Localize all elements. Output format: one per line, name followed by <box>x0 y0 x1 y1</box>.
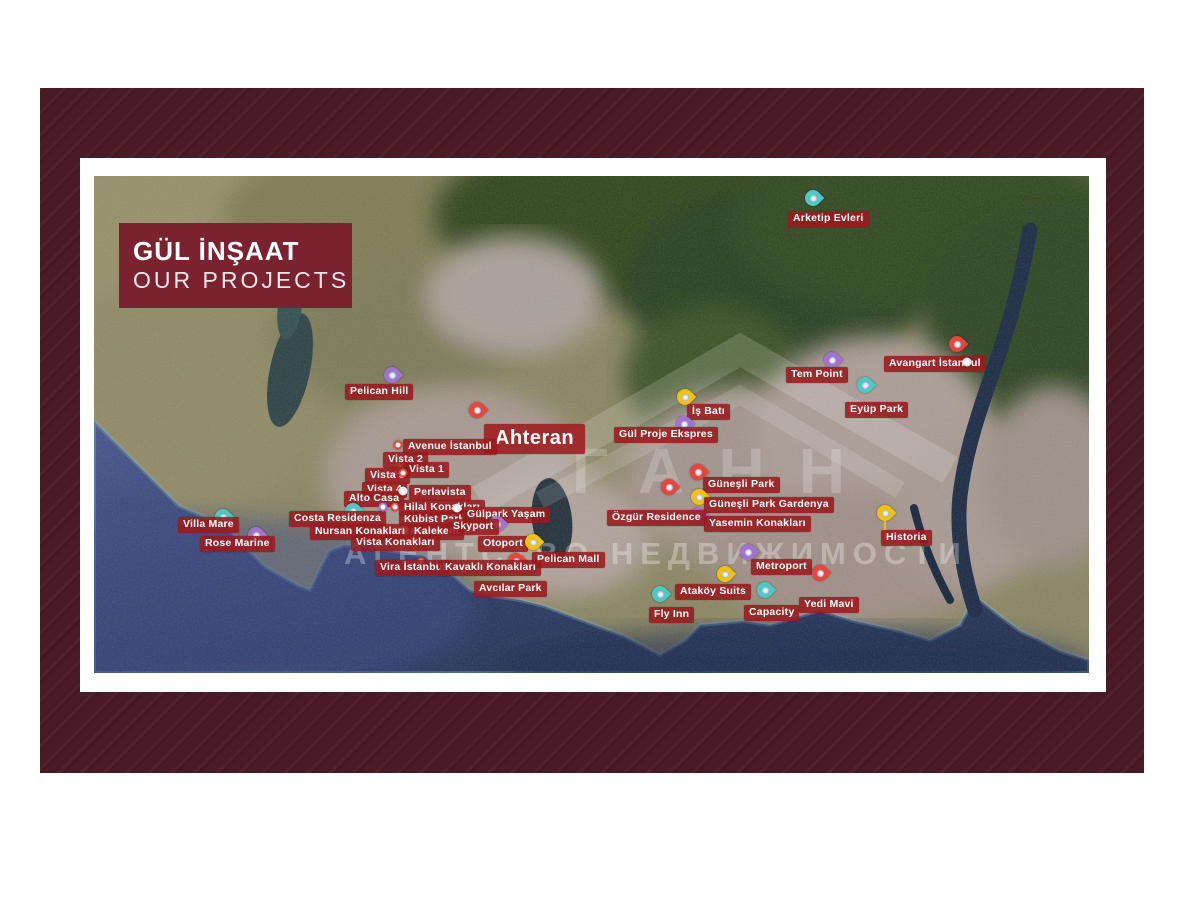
tem-point-pin <box>824 352 840 368</box>
project-label-ey-p-park: Eyüp Park <box>845 402 908 418</box>
ahteran-pin <box>469 402 485 418</box>
project-label-i-bat: İş Batı <box>687 404 730 420</box>
project-label-g-ne-li-park: Güneşli Park <box>703 477 780 493</box>
avenue-i-stanbul-pin <box>394 441 403 450</box>
project-label-g-l-proje-ekspres: Gül Proje Ekspres <box>614 427 718 443</box>
project-label-atak-y-suits: Ataköy Suits <box>675 584 751 600</box>
pelican-mall-pin <box>525 534 541 550</box>
project-label-avc-lar-park: Avcılar Park <box>474 581 547 597</box>
project-label-metroport: Metroport <box>751 559 812 575</box>
capacity-pin <box>757 582 773 598</box>
project-label-villa-mare: Villa Mare <box>178 517 239 533</box>
extra-pin-0 <box>399 469 408 478</box>
arketip-evleri-pin <box>805 190 821 206</box>
project-label-tem-point: Tem Point <box>786 367 848 383</box>
project-label-g-ne-li-park-gardenya: Güneşli Park Gardenya <box>704 497 834 513</box>
avangart-i-stanbul-pin <box>949 336 965 352</box>
atak-y-suits-pin <box>717 566 733 582</box>
project-label-pelican-mall: Pelican Mall <box>532 552 605 568</box>
project-label-perlavista: Perlavista <box>409 485 471 501</box>
slide-page: ГАНН АГЕНТСТВО НЕДВИЖИМОСТИ Pelican Hill… <box>0 0 1200 900</box>
yedi-mavi-pin <box>812 565 828 581</box>
extra-pin-2 <box>379 503 388 512</box>
project-label-yedi-mavi: Yedi Mavi <box>799 597 859 613</box>
g-lpark-ya-am-pin <box>453 504 462 513</box>
zg-r-residence-pin <box>661 479 677 495</box>
project-label-kavakl-konaklar: Kavaklı Konakları <box>440 560 541 576</box>
pelican-hill-pin <box>384 367 400 383</box>
slide-subtitle: OUR PROJECTS <box>133 266 352 295</box>
fly-inn-pin <box>652 586 668 602</box>
project-label-vista-1: Vista 1 <box>404 462 449 478</box>
i-bat-pin <box>677 389 693 405</box>
project-label-zg-r-residence: Özgür Residence <box>607 510 706 526</box>
project-label-otoport: Otoport <box>478 536 528 552</box>
perlavista-pin <box>399 487 408 496</box>
extra-pin-1 <box>963 358 972 367</box>
project-label-fly-inn: Fly Inn <box>649 607 694 623</box>
project-label-pelican-hill: Pelican Hill <box>345 384 413 400</box>
project-label-yasemin-konaklar: Yasemin Konakları <box>704 516 811 532</box>
project-label-ahteran: Ahteran <box>484 424 585 454</box>
project-label-capacity: Capacity <box>744 605 799 621</box>
project-label-historia: Historia <box>881 530 932 546</box>
company-name: GÜL İNŞAAT <box>133 237 352 266</box>
ey-p-park-pin <box>857 377 873 393</box>
title-block: GÜL İNŞAAT OUR PROJECTS <box>119 223 352 308</box>
project-label-vista-konaklar: Vista Konakları <box>351 535 440 551</box>
project-label-arketip-evleri: Arketip Evleri <box>788 211 869 227</box>
historia-pin <box>877 505 893 521</box>
project-label-rose-marine: Rose Marine <box>200 536 275 552</box>
metroport-pin <box>740 544 756 560</box>
project-label-skyport: Skyport <box>448 519 499 535</box>
